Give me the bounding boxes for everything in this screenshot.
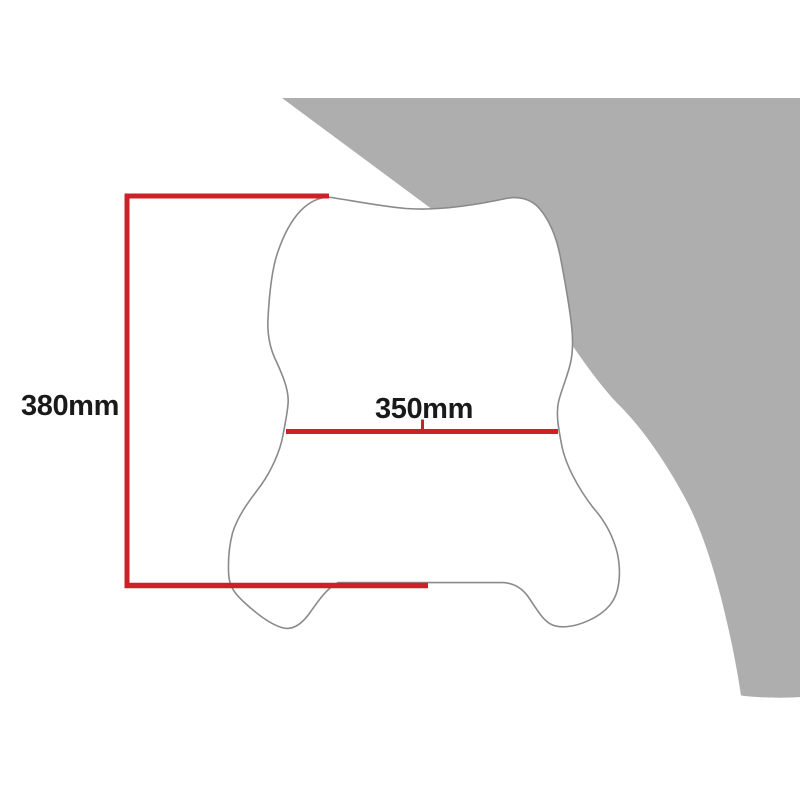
product-dimension-diagram: 380mm 350mm bbox=[0, 0, 800, 800]
height-dimension-label: 380mm bbox=[21, 392, 119, 421]
width-dimension-label: 350mm bbox=[375, 395, 470, 424]
